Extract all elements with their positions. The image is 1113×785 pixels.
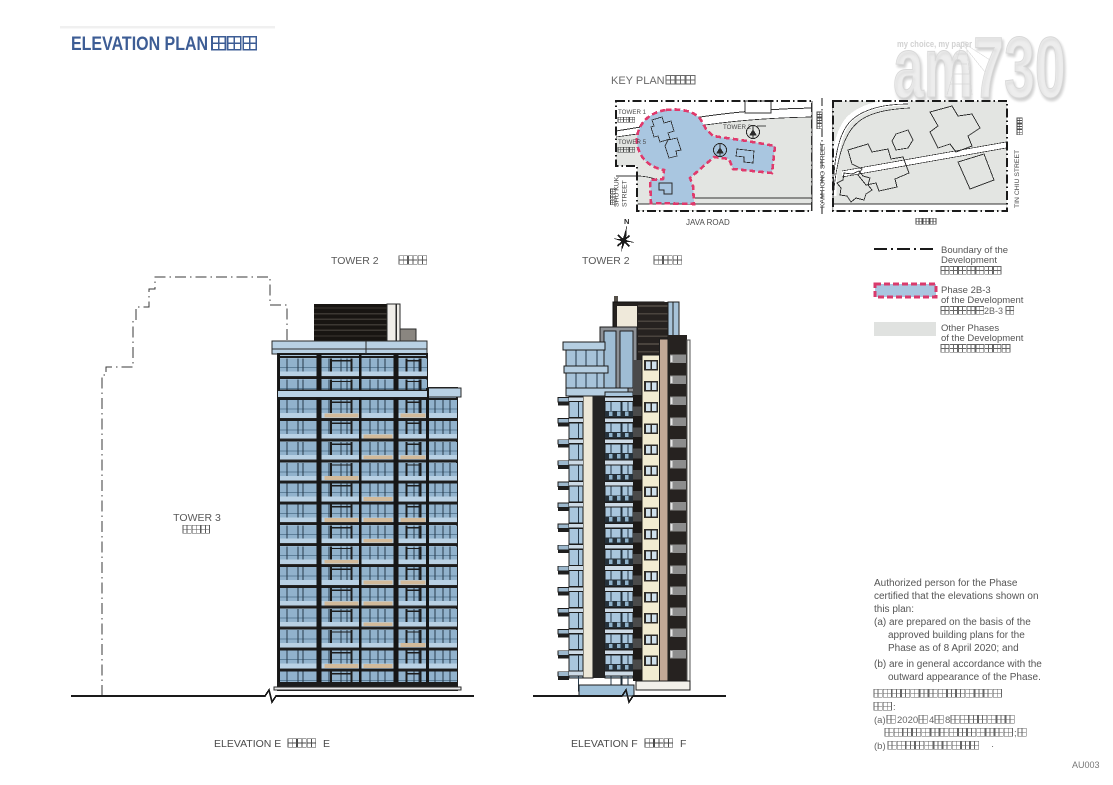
svg-text:ELEVATION F: ELEVATION F (571, 738, 638, 750)
svg-text:(a): (a) (874, 715, 886, 726)
svg-text:(b) are in general accordance: (b) are in general accordance with the (874, 659, 1042, 670)
svg-text:2B-3: 2B-3 (984, 306, 1003, 316)
svg-text:ELEVATION E: ELEVATION E (214, 738, 281, 750)
svg-text:Phase as of 8 April 2020; and: Phase as of 8 April 2020; and (888, 643, 1019, 654)
svg-text:TOWER 5: TOWER 5 (618, 139, 647, 146)
svg-text:of the Development: of the Development (941, 295, 1024, 306)
svg-text:N: N (624, 217, 629, 226)
svg-text:F: F (680, 738, 686, 750)
svg-text:this plan:: this plan: (874, 604, 914, 615)
svg-text:of the Development: of the Development (941, 333, 1024, 344)
svg-text:Authorized person for the Phas: Authorized person for the Phase (874, 578, 1018, 589)
svg-text:SHU KUK: SHU KUK (614, 176, 621, 207)
svg-text:2020: 2020 (897, 715, 918, 726)
svg-text:TOWER 2: TOWER 2 (331, 255, 379, 267)
svg-text:TOWER 2: TOWER 2 (582, 255, 630, 267)
svg-text:Development: Development (941, 255, 997, 266)
svg-text:(a) are prepared on the basis: (a) are prepared on the basis of the (874, 617, 1031, 628)
svg-text:8: 8 (945, 715, 950, 726)
svg-text:·: · (991, 741, 994, 752)
svg-text:(b): (b) (874, 741, 886, 752)
svg-text:;: ; (1014, 728, 1017, 739)
svg-text:certified that the elevations: certified that the elevations shown on (874, 591, 1039, 602)
svg-text:TOWER 1: TOWER 1 (618, 109, 647, 116)
svg-text:E: E (323, 738, 330, 750)
svg-text::: : (893, 702, 896, 713)
svg-text:KAM HONG STREET: KAM HONG STREET (820, 142, 827, 208)
svg-text:4: 4 (929, 715, 934, 726)
svg-text:ELEVATION PLAN: ELEVATION PLAN (71, 33, 208, 55)
svg-text:TIN CHIU STREET: TIN CHIU STREET (1014, 150, 1021, 208)
svg-text:AU003: AU003 (1072, 760, 1100, 770)
svg-text:approved building plans for th: approved building plans for the (888, 630, 1025, 641)
svg-text:STREET: STREET (622, 180, 629, 207)
svg-text:outward appearance of the Phas: outward appearance of the Phase. (888, 672, 1041, 683)
svg-text:KEY PLAN: KEY PLAN (611, 75, 665, 87)
svg-text:JAVA ROAD: JAVA ROAD (686, 218, 730, 227)
svg-text:TOWER 3: TOWER 3 (173, 512, 221, 524)
